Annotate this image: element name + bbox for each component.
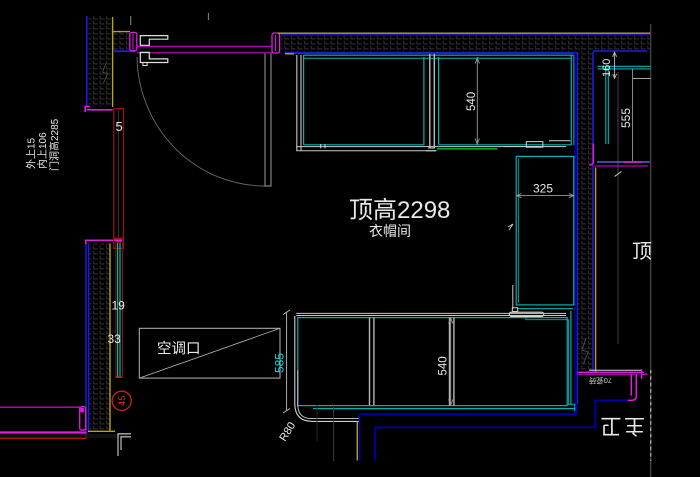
svg-text:外上15: 外上15 — [26, 137, 38, 169]
svg-text:门洞高2285: 门洞高2285 — [48, 118, 61, 171]
svg-text:540: 540 — [437, 356, 449, 375]
svg-text:45: 45 — [117, 396, 128, 407]
svg-text:540: 540 — [466, 92, 478, 111]
svg-text:内上106: 内上106 — [36, 132, 49, 169]
svg-text:顶: 顶 — [632, 241, 652, 263]
svg-text:555: 555 — [619, 108, 633, 128]
svg-text:33: 33 — [108, 332, 122, 346]
svg-text:空调口: 空调口 — [157, 341, 201, 358]
svg-text:顶高2298: 顶高2298 — [349, 197, 450, 224]
svg-text:160: 160 — [601, 59, 613, 77]
svg-text:5: 5 — [116, 119, 123, 134]
svg-text:衣帽间: 衣帽间 — [369, 223, 411, 239]
svg-text:70瓷砖: 70瓷砖 — [588, 376, 612, 386]
svg-text:主卫: 主卫 — [598, 414, 645, 437]
svg-text:19: 19 — [112, 299, 126, 313]
svg-text:325: 325 — [533, 182, 553, 196]
